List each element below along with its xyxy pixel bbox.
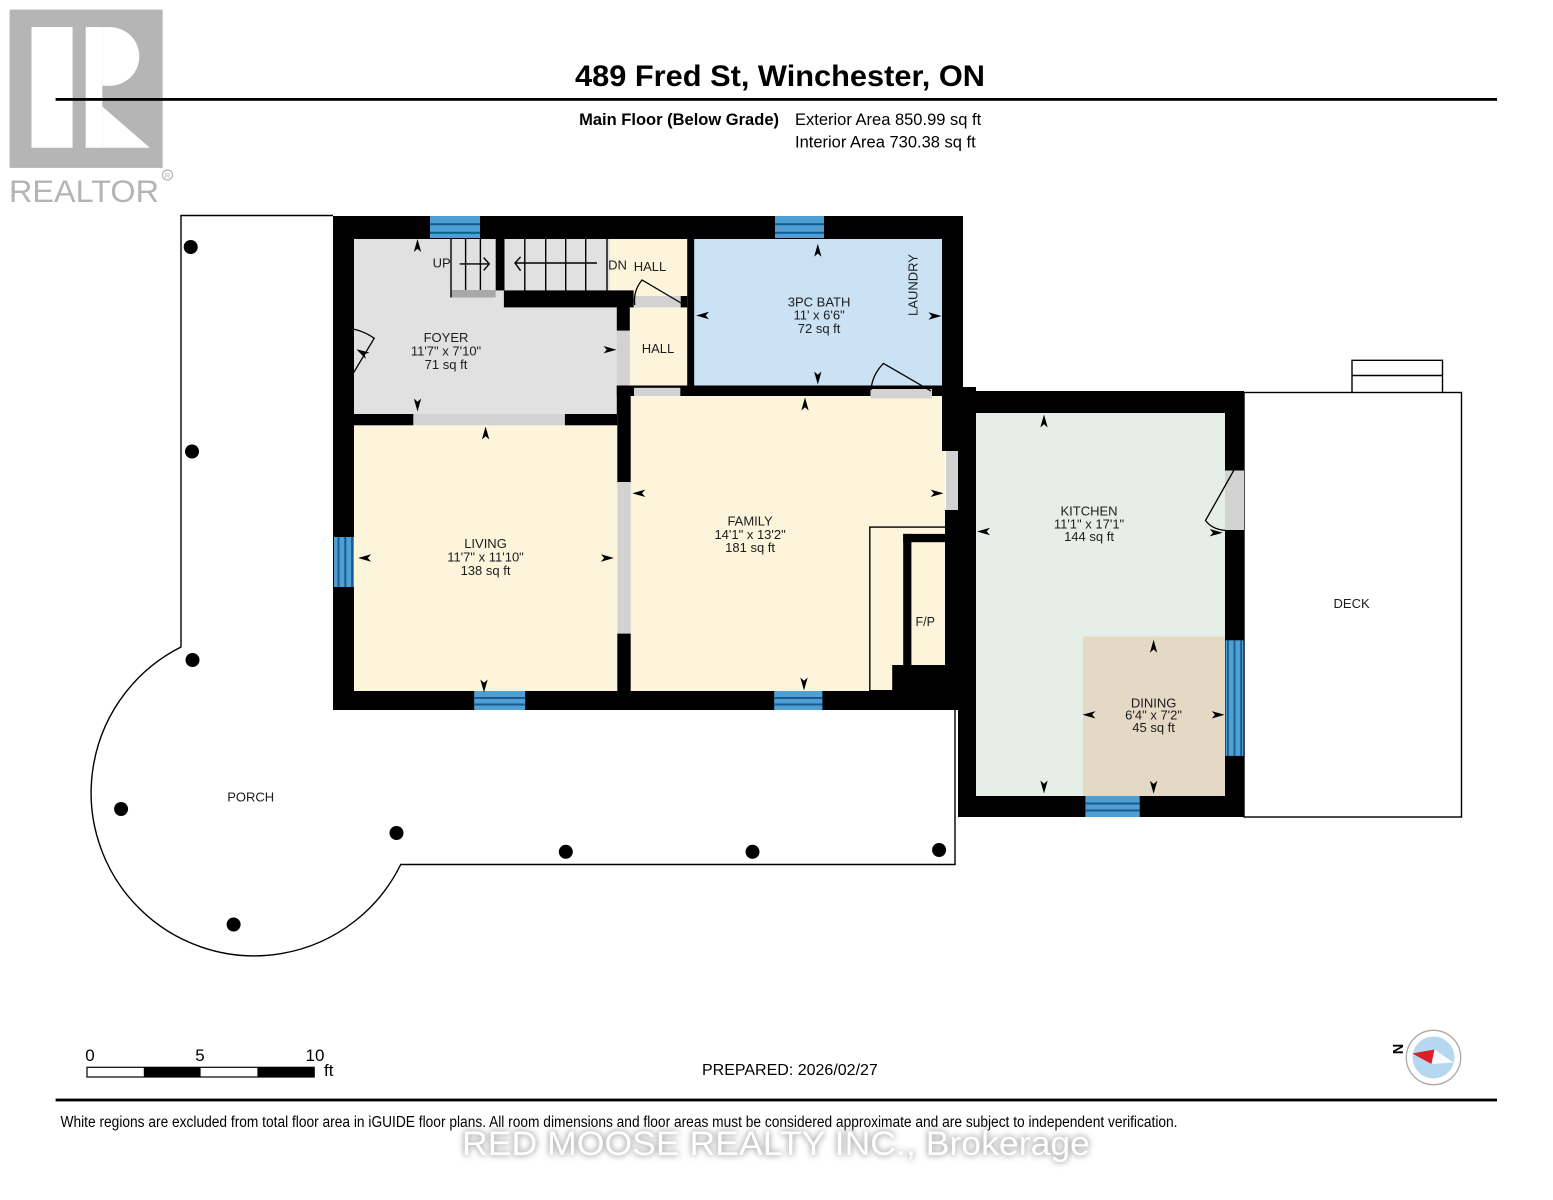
- svg-text:71 sq ft: 71 sq ft: [425, 357, 468, 372]
- svg-text:5: 5: [195, 1046, 204, 1065]
- svg-text:LAUNDRY: LAUNDRY: [906, 254, 921, 316]
- svg-text:ft: ft: [324, 1061, 334, 1080]
- svg-text:F/P: F/P: [915, 615, 934, 629]
- svg-text:Main Floor (Below Grade): Main Floor (Below Grade): [579, 111, 779, 129]
- svg-text:DN: DN: [608, 257, 627, 272]
- svg-text:N: N: [1389, 1044, 1405, 1054]
- svg-text:REALTOR: REALTOR: [9, 173, 159, 209]
- svg-text:144 sq ft: 144 sq ft: [1064, 529, 1114, 544]
- svg-text:Exterior Area 850.99 sq ft: Exterior Area 850.99 sq ft: [795, 111, 982, 129]
- svg-text:PORCH: PORCH: [227, 789, 274, 804]
- svg-text:0: 0: [85, 1046, 94, 1065]
- svg-text:Interior Area 730.38 sq ft: Interior Area 730.38 sq ft: [795, 134, 976, 152]
- svg-text:181 sq ft: 181 sq ft: [725, 540, 775, 555]
- svg-text:10: 10: [306, 1046, 325, 1065]
- svg-text:45 sq ft: 45 sq ft: [1132, 720, 1175, 735]
- svg-text:RED MOOSE REALTY INC., Brokera: RED MOOSE REALTY INC., Brokerage: [462, 1125, 1090, 1163]
- svg-text:UP: UP: [433, 255, 451, 270]
- svg-text:HALL: HALL: [642, 341, 675, 356]
- svg-text:72 sq ft: 72 sq ft: [798, 321, 841, 336]
- svg-text:R: R: [165, 171, 171, 180]
- svg-text:PREPARED: 2026/02/27: PREPARED: 2026/02/27: [702, 1062, 878, 1079]
- svg-text:489 Fred St, Winchester, ON: 489 Fred St, Winchester, ON: [575, 60, 985, 93]
- svg-text:138 sq ft: 138 sq ft: [461, 563, 511, 578]
- svg-text:HALL: HALL: [634, 259, 667, 274]
- svg-text:DECK: DECK: [1334, 596, 1370, 611]
